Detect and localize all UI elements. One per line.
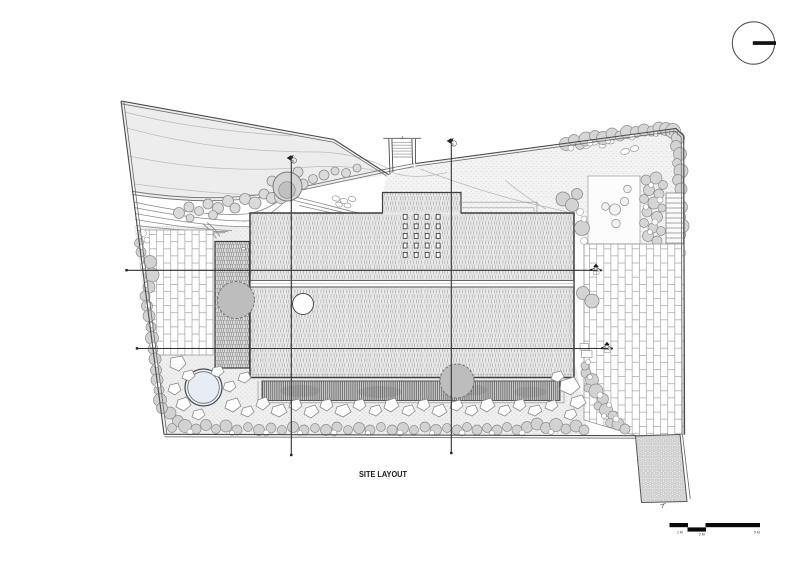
- svg-text:5 M: 5 M: [754, 531, 760, 535]
- svg-text:SITE LAYOUT: SITE LAYOUT: [359, 470, 407, 479]
- svg-text:9: 9: [292, 160, 294, 164]
- svg-text:2 M: 2 M: [699, 533, 705, 537]
- svg-text:9: 9: [452, 143, 454, 147]
- svg-text:1 M: 1 M: [677, 531, 683, 535]
